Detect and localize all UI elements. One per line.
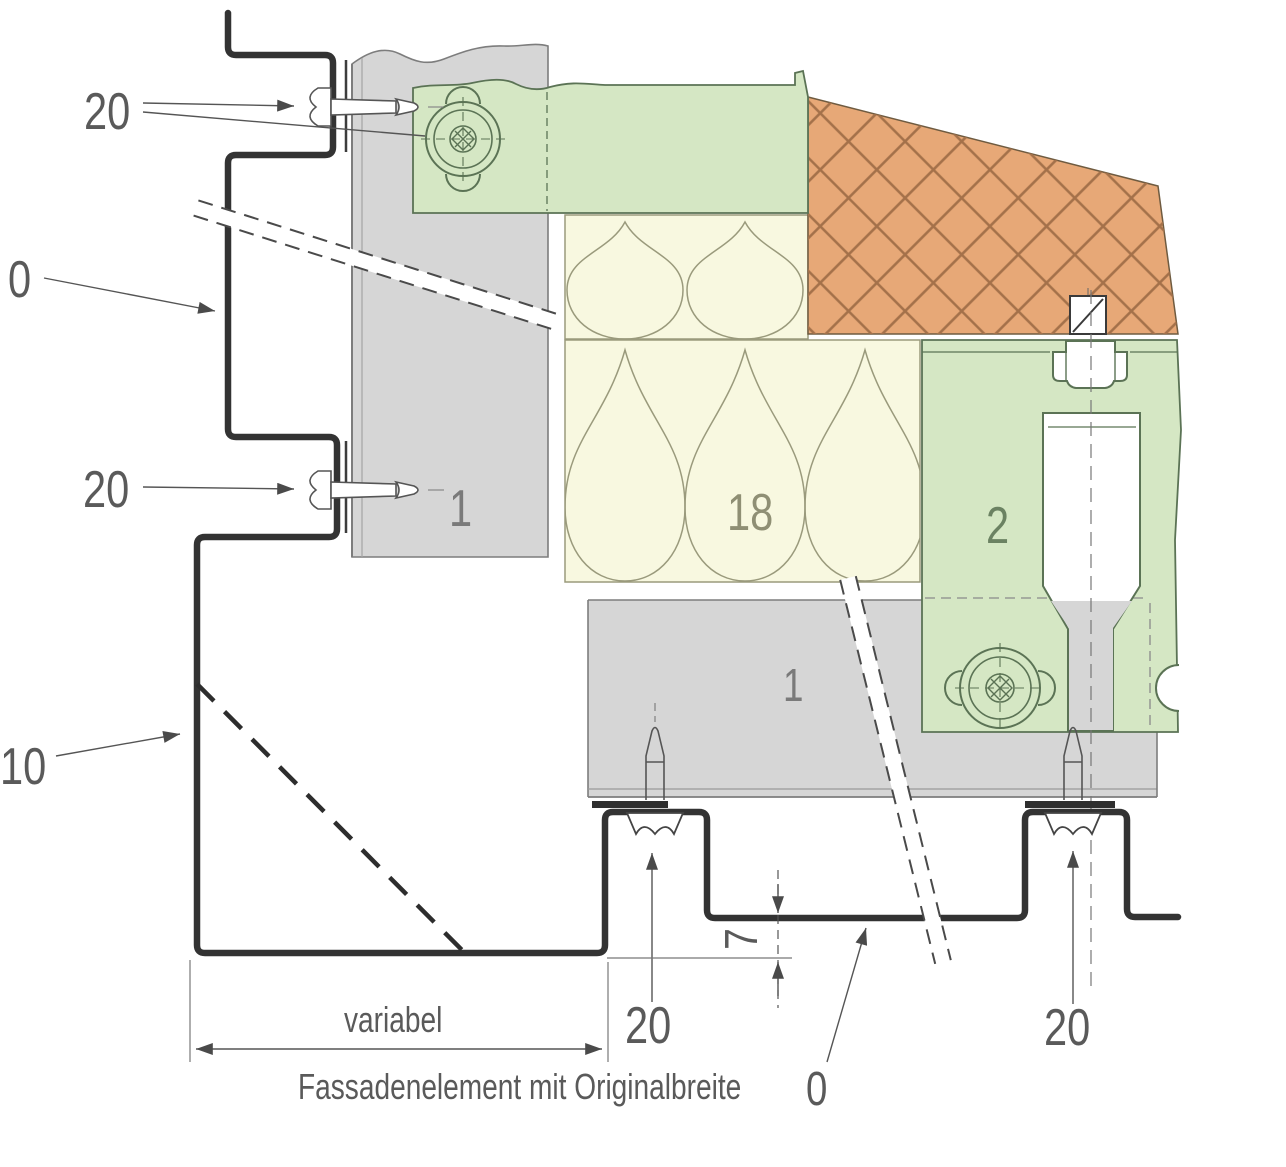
label-bracket: 2 <box>986 500 1009 552</box>
label-panel-bottom: 1 <box>783 662 803 708</box>
drawing-canvas: 20 0 20 10 1 18 2 1 7 20 20 variabel Fas… <box>0 0 1286 1167</box>
label-element-ref-top: 0 <box>8 254 31 306</box>
fold-line <box>197 684 462 950</box>
label-fastener-bottom-left: 20 <box>625 1000 671 1052</box>
label-step-depth: 7 <box>718 928 764 950</box>
bracket-arm-top <box>413 71 808 213</box>
label-element-ref-mid: 10 <box>0 741 46 793</box>
caption: Fassadenelement mit Originalbreite <box>298 1069 741 1105</box>
caption-ref: 0 <box>806 1066 827 1114</box>
facade-detail-drawing <box>0 0 1286 1167</box>
label-width-dim: variabel <box>344 1002 442 1038</box>
label-insulation: 18 <box>727 487 773 539</box>
label-fastener-bottom-right: 20 <box>1044 1002 1090 1054</box>
bracket-right <box>922 290 1181 988</box>
masonry-wall <box>808 97 1178 334</box>
label-fastener-top: 20 <box>84 86 130 138</box>
clamp-bar-right <box>1025 801 1115 808</box>
clamp-bar-left <box>592 801 668 808</box>
label-panel-top: 1 <box>449 483 472 535</box>
label-fastener-mid: 20 <box>83 464 129 516</box>
